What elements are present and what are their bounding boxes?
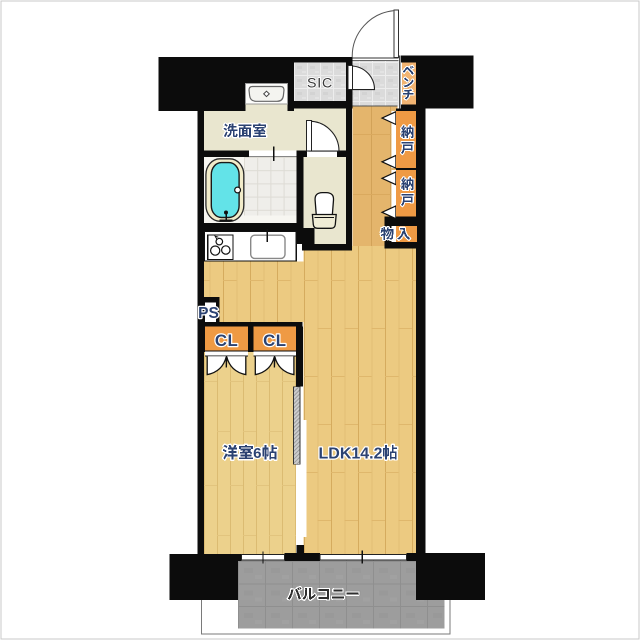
svg-text:SIC: SIC [307,76,333,92]
svg-text:6: 6 [253,445,261,462]
svg-text:LDK14.2: LDK14.2 [318,445,382,462]
svg-text:CL: CL [263,331,286,350]
svg-text:PS: PS [198,305,219,322]
svg-text:CL: CL [215,331,238,350]
